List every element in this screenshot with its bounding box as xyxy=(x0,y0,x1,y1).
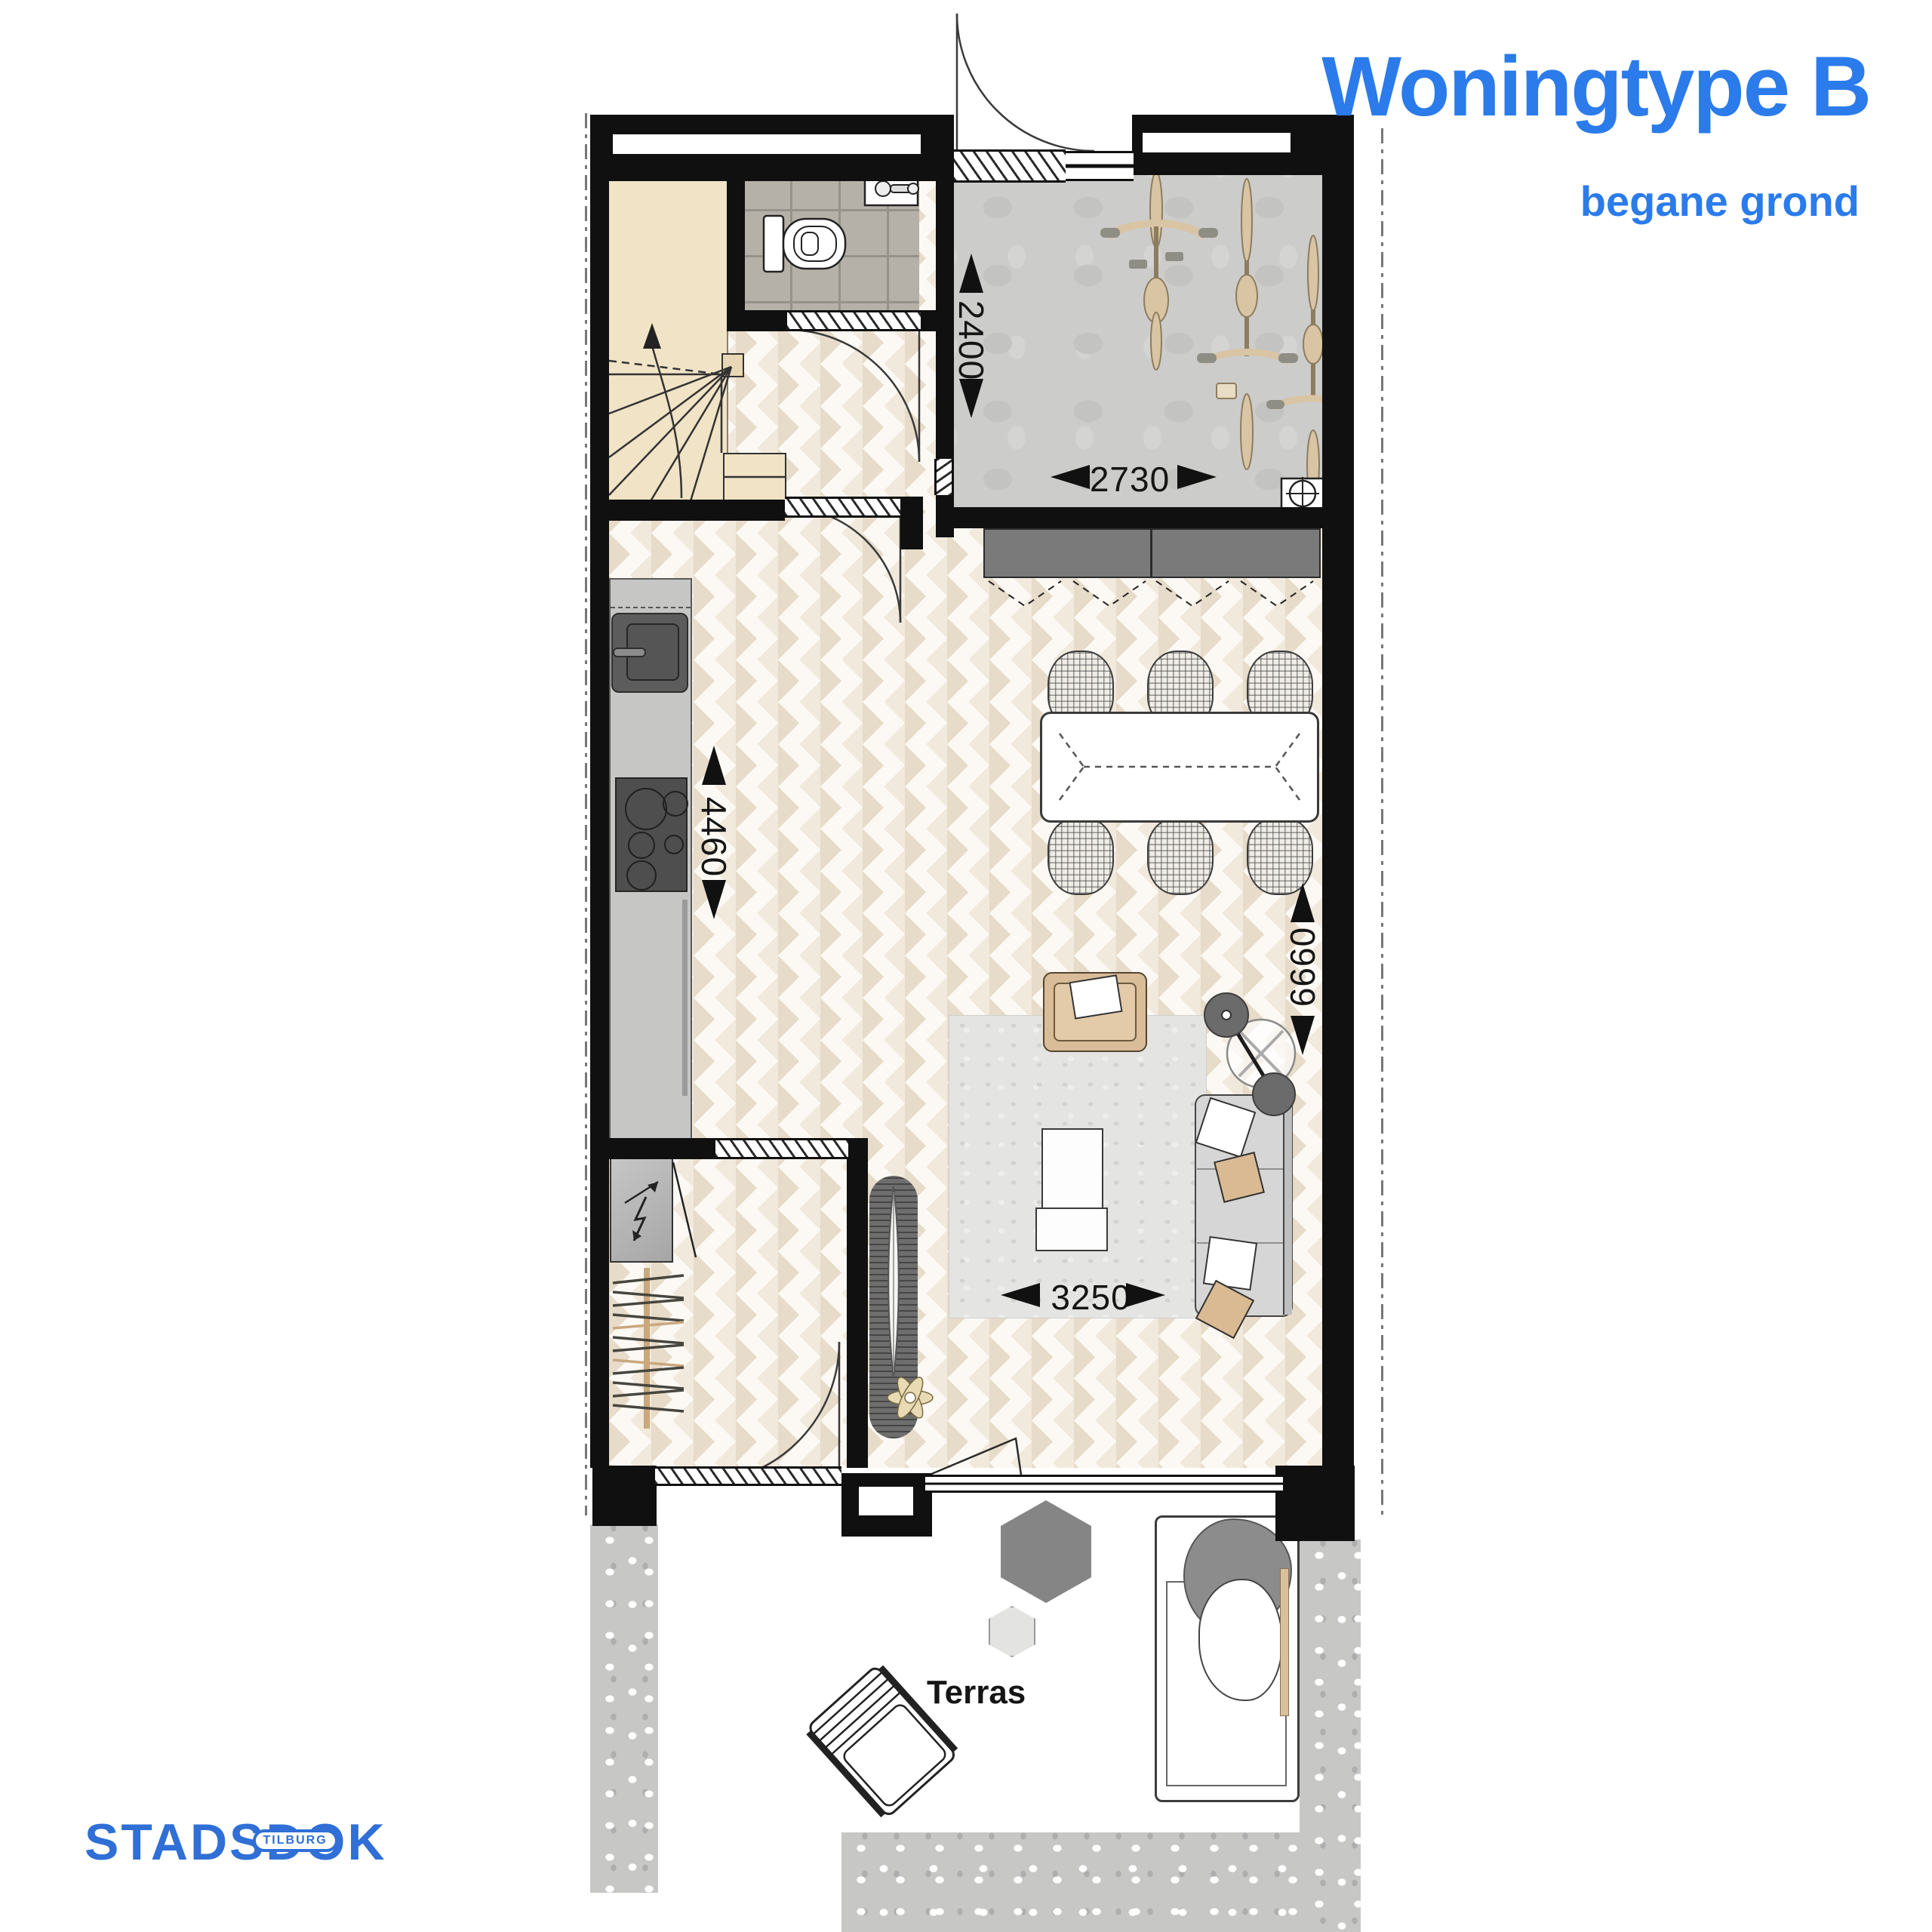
logo-letter-o: OTILBURG xyxy=(306,1813,348,1872)
dimension-label: 2400 xyxy=(951,288,992,393)
wall-right xyxy=(1322,115,1354,1466)
terrace-label: Terras xyxy=(927,1674,1026,1712)
bike xyxy=(1197,179,1298,469)
wall-bottom-left-block xyxy=(592,1466,657,1526)
wall-stair-toilet-divider xyxy=(727,172,745,330)
wall-cavity xyxy=(613,134,921,154)
wall-stair-south xyxy=(590,500,785,521)
storage-drain xyxy=(1281,477,1324,510)
hall-living-door-swing xyxy=(785,507,900,623)
front-sidelight-window xyxy=(1066,151,1134,181)
pier-notch xyxy=(859,1487,913,1515)
toilet-door-opening xyxy=(787,310,921,331)
wall-bike-storage-bottom xyxy=(936,507,1322,528)
bike xyxy=(1100,172,1218,370)
coat-rack xyxy=(613,1268,684,1429)
wall-toilet-south-right xyxy=(919,310,954,331)
dimension-label: 3250 xyxy=(1048,1277,1134,1318)
kitchen-hall-opening xyxy=(715,1138,848,1159)
wall-kitchen-south xyxy=(592,1138,717,1159)
terrace-door-swing xyxy=(698,1342,839,1483)
plant-leaf xyxy=(888,1186,933,1421)
table-extension-dashes xyxy=(1060,734,1300,800)
sliding-door-fold xyxy=(930,1438,1021,1475)
front-door-swing xyxy=(957,14,1094,151)
page-title: Woningtype B xyxy=(1321,38,1870,135)
logo-badge: TILBURG xyxy=(253,1829,338,1852)
wall-bottom-right-block xyxy=(1275,1466,1355,1541)
staircase-lines xyxy=(609,323,786,501)
hall-living-door-opening xyxy=(785,497,900,518)
toilet-door-swing xyxy=(787,330,919,462)
meter-symbols xyxy=(625,1162,696,1257)
terrace-door-threshold xyxy=(655,1466,841,1486)
wardrobe-door-dashes xyxy=(989,581,1313,606)
wall-toilet-south-left xyxy=(727,310,787,331)
floorplan-sheet: 2400 2730 4460 6660 3250 Woningtype B be… xyxy=(0,0,1932,1932)
wall-stub xyxy=(900,497,923,549)
dimension-label: 4460 xyxy=(694,784,734,890)
bike-storage-door-opening xyxy=(934,459,954,495)
dimension-label: 2730 xyxy=(1088,459,1171,500)
dimension-label: 6660 xyxy=(1282,914,1323,1020)
front-door-threshold xyxy=(954,149,1066,183)
sliding-glass-door xyxy=(925,1475,1283,1493)
wall-hall-living xyxy=(847,1138,868,1468)
wall-cavity xyxy=(1143,133,1291,152)
wall-left xyxy=(590,115,609,1468)
logo-suffix: K xyxy=(347,1813,386,1872)
page-subtitle: begane grond xyxy=(1580,177,1860,226)
stadsdok-logo: STADSDOTILBURGK xyxy=(85,1813,387,1872)
toilet-fixture xyxy=(764,216,845,272)
